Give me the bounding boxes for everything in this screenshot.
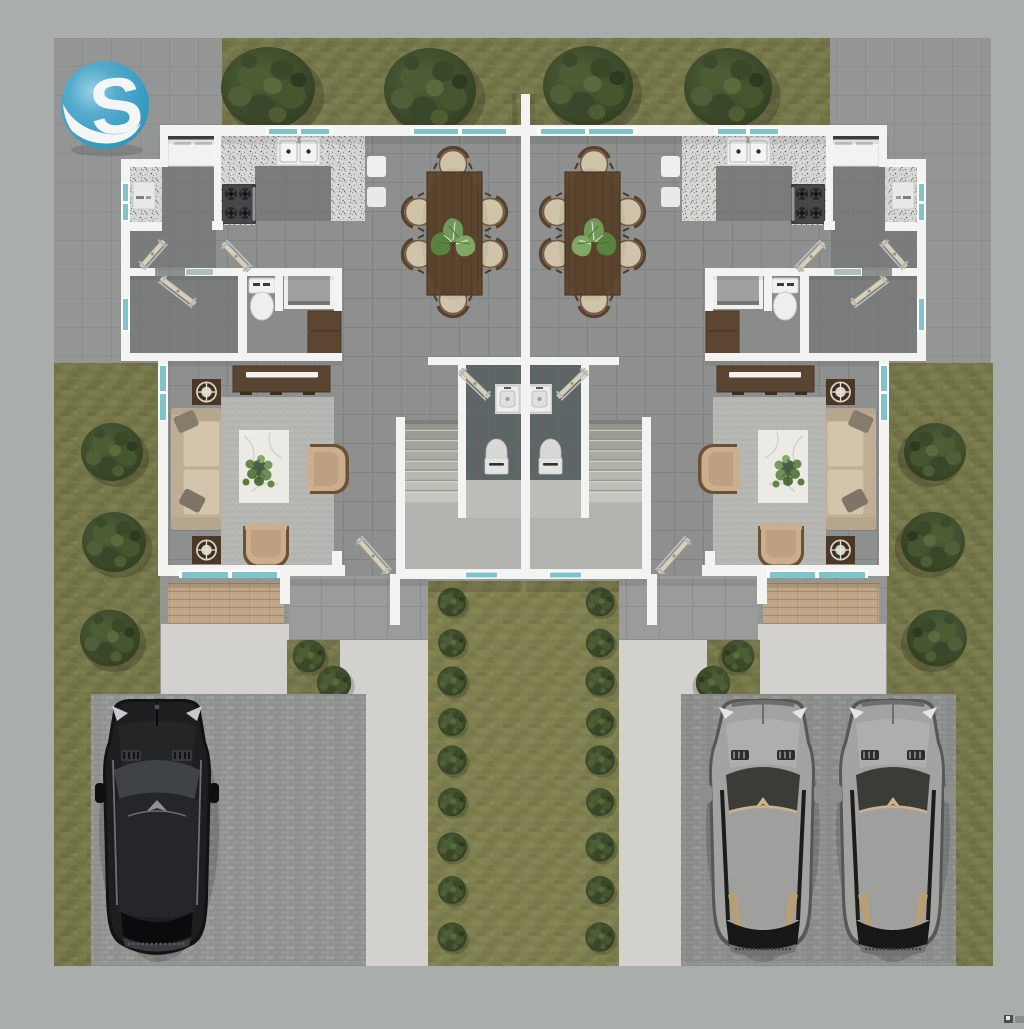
svg-text:S: S xyxy=(85,58,147,152)
